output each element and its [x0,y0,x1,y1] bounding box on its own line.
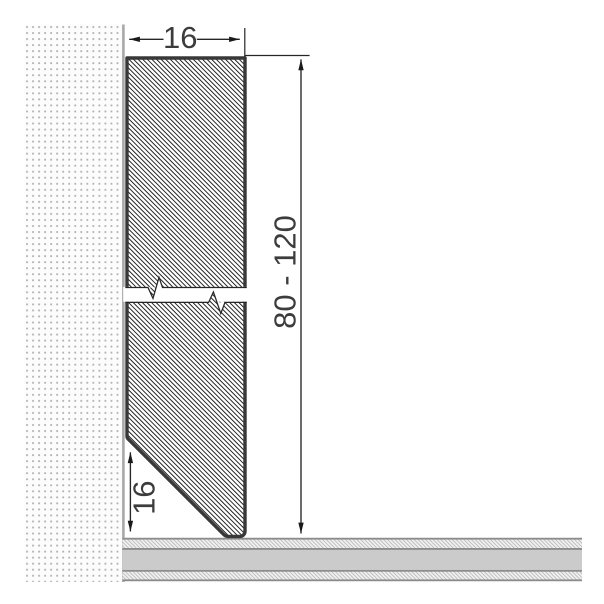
svg-text:16: 16 [163,20,197,55]
svg-text:16: 16 [127,480,162,514]
svg-text:80 - 120: 80 - 120 [267,215,302,329]
